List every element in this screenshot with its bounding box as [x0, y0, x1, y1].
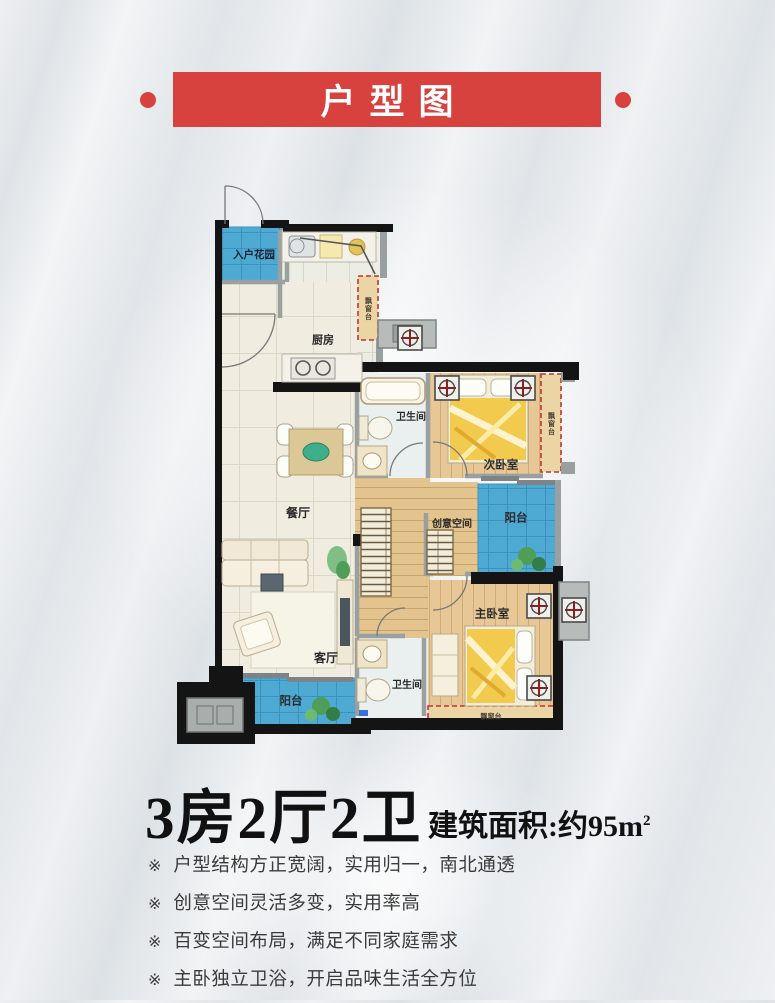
room-label-kitchen: 厨房	[312, 336, 334, 347]
ac-icon	[527, 676, 551, 700]
feature-item: ※ 创意空间灵活多变，实用率高	[148, 889, 515, 927]
feature-item: ※ 百变空间布局，满足不同家庭需求	[148, 927, 515, 965]
feature-text: 户型结构方正宽阔，实用归一，南北通透	[173, 851, 515, 877]
ac-icon	[562, 598, 586, 622]
room-label-dining: 餐厅	[286, 507, 310, 519]
room-label-bathroom1: 卫生间	[396, 413, 426, 423]
reference-mark-icon: ※	[148, 970, 161, 990]
ac-icon	[527, 594, 551, 618]
page-title: 户型图	[320, 74, 467, 125]
reference-mark-icon: ※	[148, 894, 161, 914]
area-label: 建筑面积:约95m	[428, 810, 643, 843]
room-label-bathroom2: 卫生间	[392, 681, 422, 691]
floor-plan: 入户花园 厨房 卫生间 次卧室 餐厅 创意空间 阳台 主卧室 卫生间 客厅 阳台…	[165, 168, 665, 778]
room-label-creative-space: 创意空间	[432, 520, 472, 530]
corridor-furniture	[361, 508, 391, 596]
bay-stub-bottom	[561, 462, 575, 474]
room-label-balcony-bottom: 阳台	[280, 696, 303, 708]
banner-left-dot-icon	[140, 92, 156, 108]
ac-icon	[511, 376, 535, 400]
banner-right-dot-icon	[615, 92, 631, 108]
feature-text: 主卧独立卫浴，开启品味生活全方位	[173, 965, 477, 991]
feature-text: 百变空间布局，满足不同家庭需求	[173, 927, 458, 953]
balcony-right-wall	[555, 480, 561, 572]
floorplan-poster: { "header": { "title": "户型图" }, "floorpl…	[0, 0, 775, 1000]
room-label-balcony-right: 阳台	[505, 513, 528, 525]
reference-mark-icon: ※	[148, 856, 161, 876]
feature-list: ※ 户型结构方正宽阔，实用归一，南北通透 ※ 创意空间灵活多变，实用率高 ※ 百…	[148, 851, 515, 1003]
feature-item: ※ 户型结构方正宽阔，实用归一，南北通透	[148, 851, 515, 889]
room-label-master-bedroom: 主卧室	[475, 609, 510, 621]
area-exponent: 2	[643, 813, 651, 829]
bay-window-label-master: 飘窗台	[481, 714, 502, 721]
ac-icon	[435, 376, 459, 400]
room-label-entry-garden: 入户花园	[233, 250, 275, 261]
ac-icon	[398, 326, 422, 350]
creative-space-furniture	[427, 530, 453, 574]
room-label-second-bedroom: 次卧室	[484, 460, 519, 472]
layout-title: 3房2厅2卫	[145, 770, 423, 855]
entry-right-wall	[380, 228, 387, 278]
bay-window-label-kitchen: 飘窗台	[365, 297, 372, 321]
reference-mark-icon: ※	[148, 932, 161, 952]
second-bedroom-furniture	[435, 375, 535, 463]
banner: 户型图	[173, 72, 601, 127]
room-label-living: 客厅	[314, 652, 338, 664]
feature-item: ※ 主卧独立卫浴，开启品味生活全方位	[148, 965, 515, 1003]
feature-text: 创意空间灵活多变，实用率高	[173, 889, 420, 915]
bay-window-label-bedroom2: 飘窗台	[548, 412, 555, 436]
area-text: 建筑面积:约95m2	[428, 801, 650, 845]
